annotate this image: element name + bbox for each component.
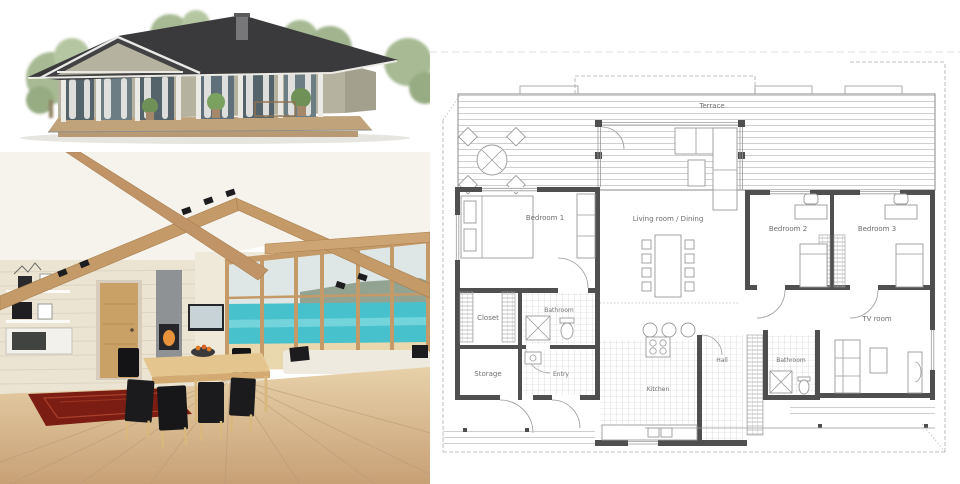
bed-symbol (461, 196, 533, 258)
coffee-table-symbol (870, 348, 887, 373)
closet-rail-symbol (502, 292, 515, 342)
closet-rail-symbol (460, 292, 473, 342)
room-label-hall: Hall (716, 357, 728, 364)
fire (163, 330, 175, 346)
exterior-photo (0, 0, 430, 148)
rear-deck (790, 402, 935, 416)
room-label-living: Living room / Dining (633, 215, 704, 223)
stove-symbol (646, 337, 670, 357)
room-label-closet: Closet (477, 314, 499, 322)
room-label-bathroom2: Bathroom (776, 357, 806, 364)
tv-room: TV room (820, 315, 935, 398)
porch-deck (443, 430, 595, 446)
dining-table-symbol (642, 235, 694, 297)
room-label-tvroom: TV room (861, 315, 892, 323)
interior-photo (0, 152, 430, 484)
bathroom: Bathroom (523, 293, 595, 344)
floor-plan-drawing: Terrace (430, 0, 960, 484)
hall: Hall (702, 335, 743, 440)
room-label-bathroom: Bathroom (544, 307, 574, 314)
exterior-scene (0, 0, 430, 148)
toilet-symbol (798, 377, 810, 394)
chimney (236, 16, 248, 40)
wardrobe-symbol (747, 335, 763, 435)
chair-symbol (894, 194, 908, 204)
desk-symbol (795, 205, 827, 219)
tv-symbol (908, 352, 922, 393)
collage: Terrace (0, 0, 960, 484)
bedroom3: Bedroom 3 (834, 194, 923, 287)
bed-symbol (800, 244, 827, 287)
interior-scene (0, 152, 430, 484)
bedroom2: Bedroom 2 (769, 194, 830, 287)
room-label-kitchen: Kitchen (647, 386, 670, 393)
chair-symbol (804, 194, 818, 204)
door-handle (130, 328, 134, 332)
entry: Entry (523, 350, 595, 395)
desk-symbol (885, 205, 917, 219)
left-wing: Bedroom 1 Closet (443, 187, 600, 446)
room-label-bedroom3: Bedroom 3 (858, 225, 896, 233)
toilet-symbol (560, 318, 574, 339)
dresser-symbol (577, 194, 595, 258)
room-label-terrace: Terrace (698, 102, 724, 110)
sink-symbol (525, 352, 541, 364)
sofa-symbol (835, 340, 860, 393)
floor-plan: Terrace (430, 0, 960, 484)
room-label-bedroom1: Bedroom 1 (526, 214, 564, 222)
sink-symbol (648, 428, 659, 437)
pendant-lights-symbol (643, 323, 695, 337)
room-label-entry: Entry (553, 371, 569, 378)
bathroom2: Bathroom (768, 335, 815, 395)
room-label-bedroom2: Bedroom 2 (769, 225, 807, 233)
bed-symbol (896, 244, 923, 287)
room-label-storage: Storage (474, 370, 501, 378)
